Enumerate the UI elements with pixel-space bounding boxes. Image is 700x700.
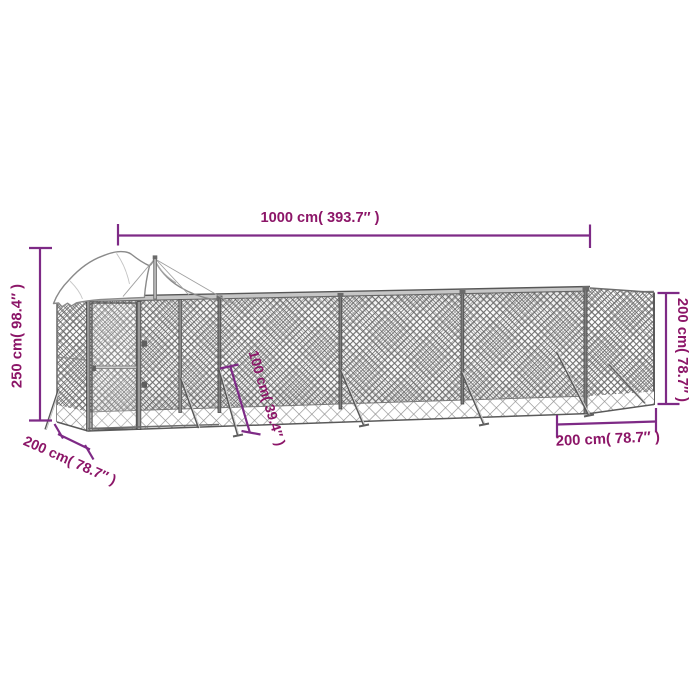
svg-text:250 cm( 98.4″ ): 250 cm( 98.4″ ) <box>10 284 26 388</box>
svg-text:1000 cm( 393.7″ ): 1000 cm( 393.7″ ) <box>261 210 380 226</box>
svg-text:200 cm( 78.7″ ): 200 cm( 78.7″ ) <box>674 298 690 402</box>
